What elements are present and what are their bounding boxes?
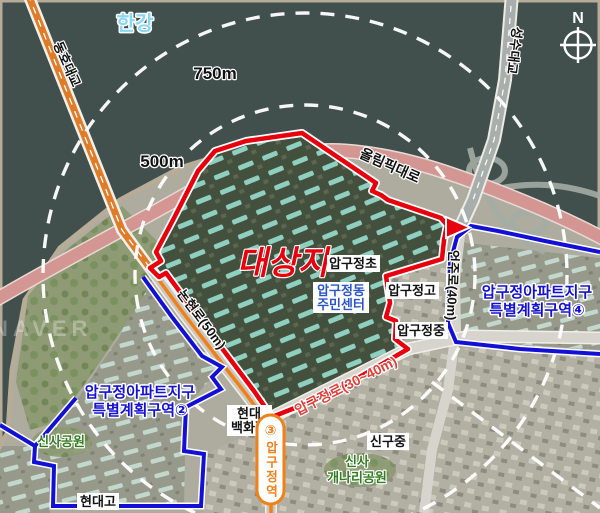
dept-store-label-line1: 현대 xyxy=(237,406,261,421)
naver-watermark: NAVER xyxy=(0,316,92,341)
district4-label-line2: 특별계획구역④ xyxy=(489,301,585,319)
sinsa-park-label: 신사공원 xyxy=(37,434,85,449)
compass-n-label: N xyxy=(572,10,584,27)
community-center-label-line2: 주민센터 xyxy=(317,297,365,312)
site-label: 대상지 xyxy=(236,245,335,282)
school-singu-label: 신구중 xyxy=(370,434,406,449)
school-middle-label: 압구정중 xyxy=(397,323,445,338)
gaenari-park-label-line1: 신사 xyxy=(345,454,369,469)
district2-label-line1: 압구정아파트지구 xyxy=(85,383,196,401)
apartments-bottom-left xyxy=(0,446,50,513)
school-hyundai-label: 현대고 xyxy=(80,494,116,509)
district2-label-line2: 특별계획구역② xyxy=(92,401,188,419)
radius-500m-label: 500m xyxy=(140,152,183,171)
map-figure: 한강 750m 500m 동호대교 성수대교 올림픽대로 논현로(50m) 언주… xyxy=(0,0,600,513)
school-elementary-label: 압구정초 xyxy=(329,256,377,271)
district4-label-line1: 압구정아파트지구 xyxy=(482,283,593,301)
station-line-badge: ③ xyxy=(265,422,277,438)
map-canvas: 한강 750m 500m 동호대교 성수대교 올림픽대로 논현로(50m) 언주… xyxy=(0,0,600,513)
radius-750m-label: 750m xyxy=(193,64,236,83)
gaenari-park-label-line2: 개나리공원 xyxy=(327,470,387,485)
eonju-road-label: 언주로(40m) xyxy=(444,250,461,321)
station-name-label: 압구정역 xyxy=(264,441,278,499)
river-label: 한강 xyxy=(117,12,154,35)
school-high-label: 압구정고 xyxy=(388,283,436,298)
svg-text:대상지: 대상지 xyxy=(236,245,335,282)
community-center-label-line1: 압구정동 xyxy=(317,283,365,298)
apgujeong-station-marker: ③ 압구정역 xyxy=(257,415,284,504)
